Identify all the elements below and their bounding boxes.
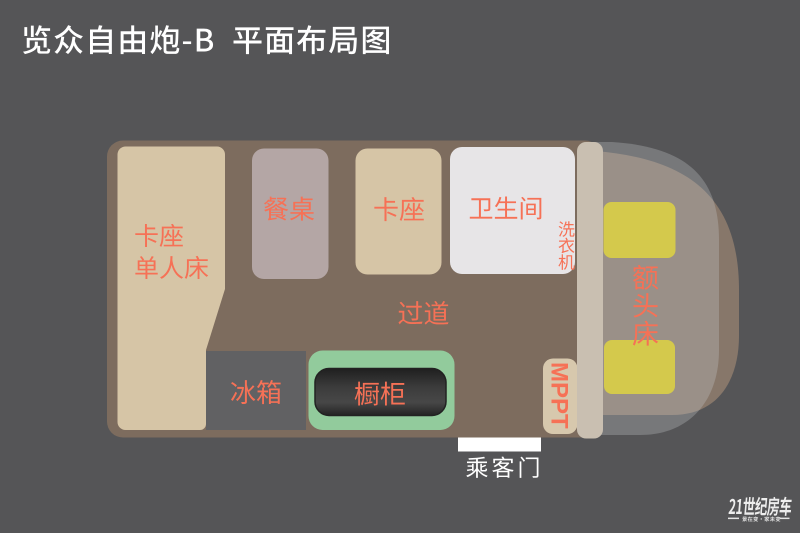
svg-text:MPPT: MPPT bbox=[546, 362, 573, 429]
